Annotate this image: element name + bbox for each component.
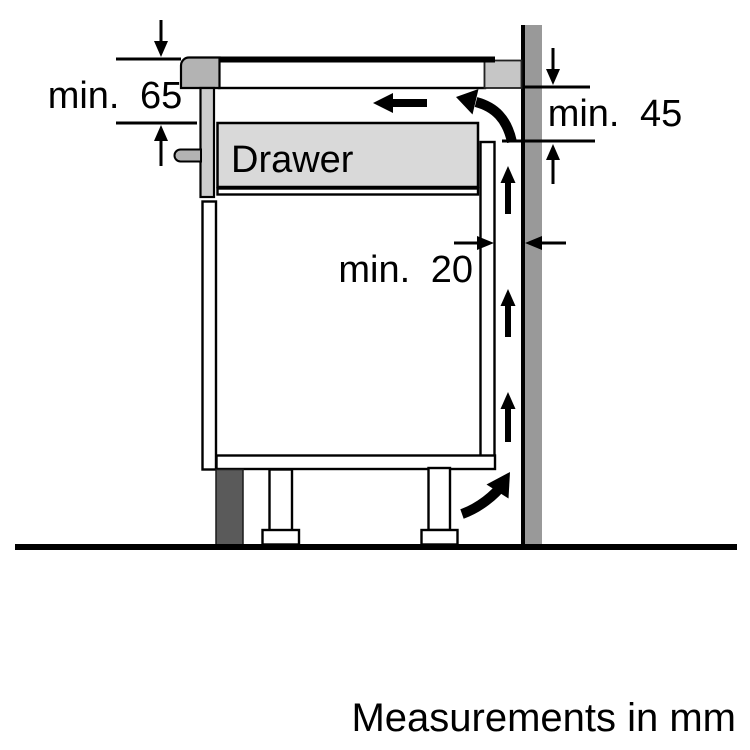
cabinet-side-strip <box>201 88 215 197</box>
drawer-label: Drawer <box>231 139 354 181</box>
airflow-arrow-up-1-icon <box>501 166 516 183</box>
cabinet-back-panel <box>481 142 495 456</box>
airflow-arrow-up-3-shaft <box>505 408 511 442</box>
hob-front-trim <box>181 58 220 89</box>
arrow-down-icon <box>546 69 560 85</box>
plinth <box>216 470 243 546</box>
dimension-min-65: min. 65 <box>48 20 197 166</box>
wall <box>525 25 542 546</box>
airflow-arrow-up-3-icon <box>501 392 516 409</box>
airflow-curve-top-head-icon <box>456 89 479 115</box>
min-20-label: min. 20 <box>338 249 473 291</box>
wall-edge-line <box>521 25 525 546</box>
arrow-up-icon <box>154 125 168 141</box>
hob-glass-surface <box>212 57 495 63</box>
airflow-arrow-up-1-shaft <box>505 182 511 214</box>
cabinet-side-panel <box>203 202 217 470</box>
front-leg <box>270 470 293 531</box>
front-foot <box>263 530 300 545</box>
fixing-bracket <box>175 150 202 162</box>
airflow-curve-top <box>476 102 512 142</box>
min-65-label: min. 65 <box>48 75 183 117</box>
arrow-down-icon <box>154 41 168 57</box>
worktop-back-section <box>485 61 522 89</box>
floor-line <box>15 544 737 550</box>
cabinet-bottom-panel <box>217 456 496 470</box>
hob-installation-figure: Drawer min. 65 min. 45 min. 20 <box>0 0 750 750</box>
min-45-label: min. 45 <box>548 93 683 135</box>
measurements-unit-label: Measurements in mm <box>351 696 736 740</box>
arrow-up-icon <box>546 144 560 160</box>
drawer-rail <box>218 189 479 195</box>
airflow-arrow-up-2-icon <box>501 289 516 306</box>
airflow-arrow-left-shaft <box>391 99 427 107</box>
worktop-front-section <box>219 59 485 88</box>
back-leg <box>429 468 451 530</box>
airflow-arrow-left-icon <box>373 93 393 113</box>
airflow-arrow-up-2-shaft <box>505 305 511 337</box>
back-foot <box>422 530 458 545</box>
hob-installation-diagram: Drawer min. 65 min. 45 min. 20 <box>0 0 750 750</box>
